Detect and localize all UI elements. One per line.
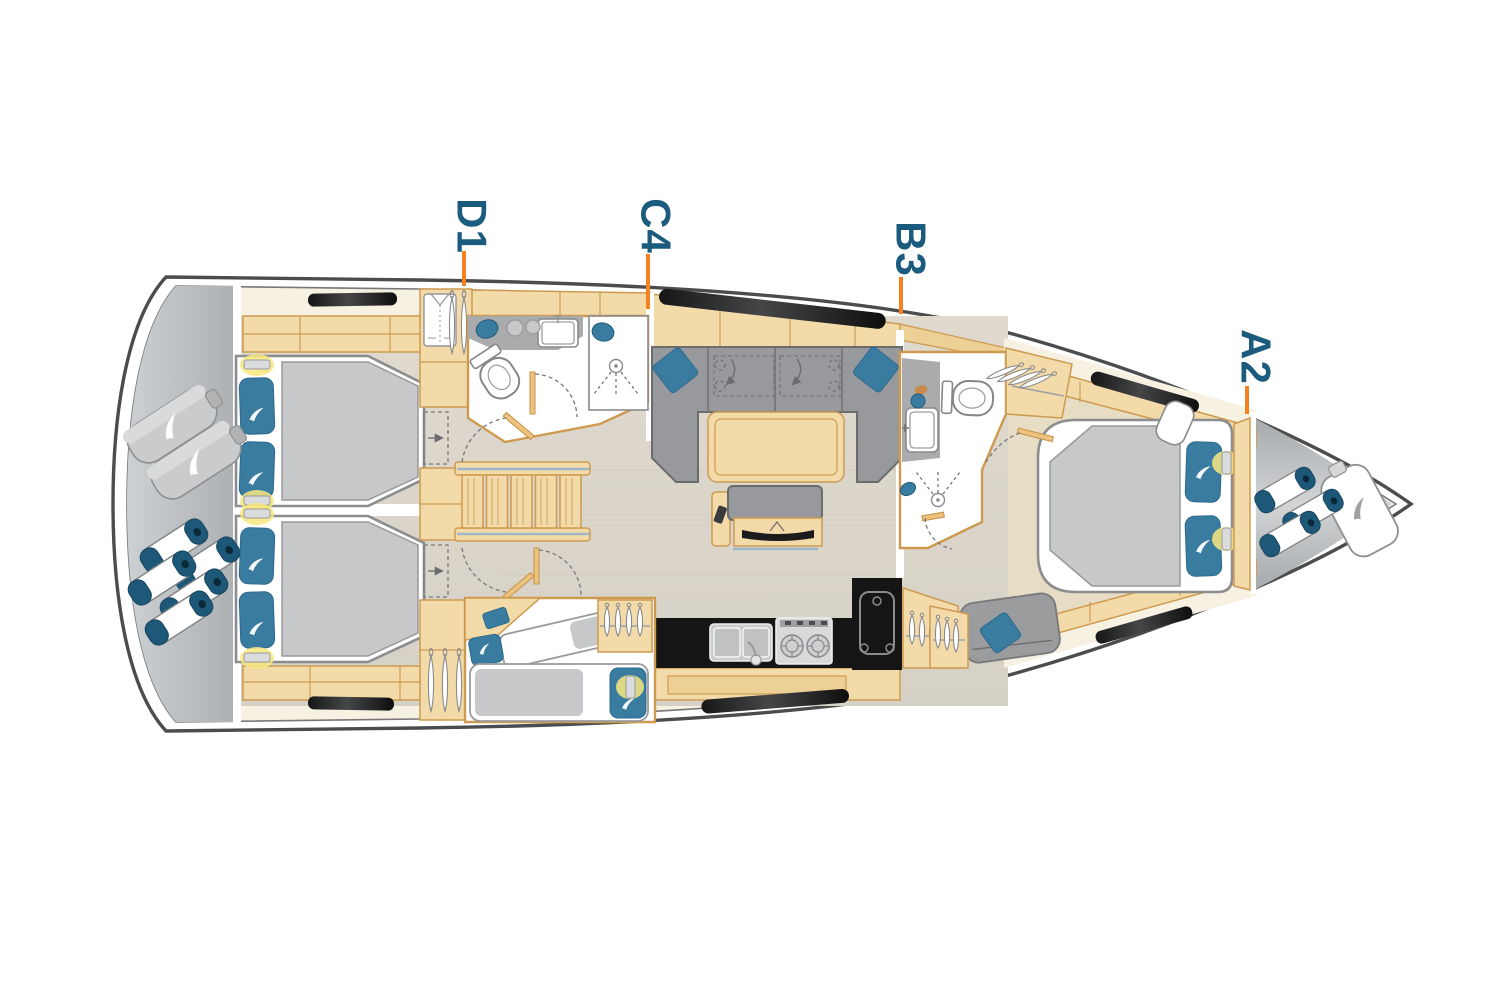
cabin-label-b3: B3 [888, 221, 935, 277]
reading-light-icon [240, 354, 274, 376]
stair-treads [462, 475, 581, 528]
lower-berth [470, 664, 648, 721]
toilet-icon [941, 380, 993, 416]
deck-plan-svg: D1 C4 B3 A2 [0, 0, 1500, 1000]
stove-icon [776, 618, 832, 664]
head-top-cabinet [470, 290, 650, 316]
sink-icon [710, 624, 772, 665]
door-leaf [530, 372, 535, 414]
reading-light-icon [616, 675, 644, 699]
tick-c4 [646, 254, 650, 309]
sink-icon [906, 408, 938, 452]
door-leaf [534, 548, 539, 584]
vanity-bowl [526, 320, 540, 334]
port-aft-cabin [236, 354, 424, 512]
cabin-label-a2: A2 [1233, 329, 1280, 385]
pillow [239, 377, 275, 434]
duvet-forward [1050, 426, 1180, 586]
tick-a2 [1245, 386, 1249, 414]
tick-d1 [462, 251, 466, 286]
pillow [239, 591, 275, 648]
wardrobe-port [420, 289, 472, 407]
pillow [468, 633, 504, 666]
reading-light-icon [240, 503, 274, 525]
hanging-locker-forward [930, 606, 968, 668]
towel [911, 394, 925, 408]
sink-icon [538, 319, 578, 347]
headboard-cabinet [1234, 418, 1250, 590]
window-starboard-aft [308, 696, 394, 710]
cabin-label-c4: C4 [633, 198, 680, 254]
reading-light-icon [240, 647, 274, 669]
tv-bench [712, 486, 822, 549]
saloon-table [708, 412, 844, 482]
tick-b3 [899, 277, 903, 314]
pillow [1185, 441, 1222, 502]
cabin-label-d1: D1 [449, 198, 496, 254]
pillow [239, 527, 275, 584]
duvet-starboard-aft [282, 522, 418, 656]
bunk-wardrobe [598, 600, 652, 652]
window-port-aft [308, 292, 397, 307]
yacht-deck-plan: D1 C4 B3 A2 [0, 0, 1500, 1000]
vanity-bowl [507, 320, 523, 336]
duvet-port-aft [282, 362, 418, 500]
